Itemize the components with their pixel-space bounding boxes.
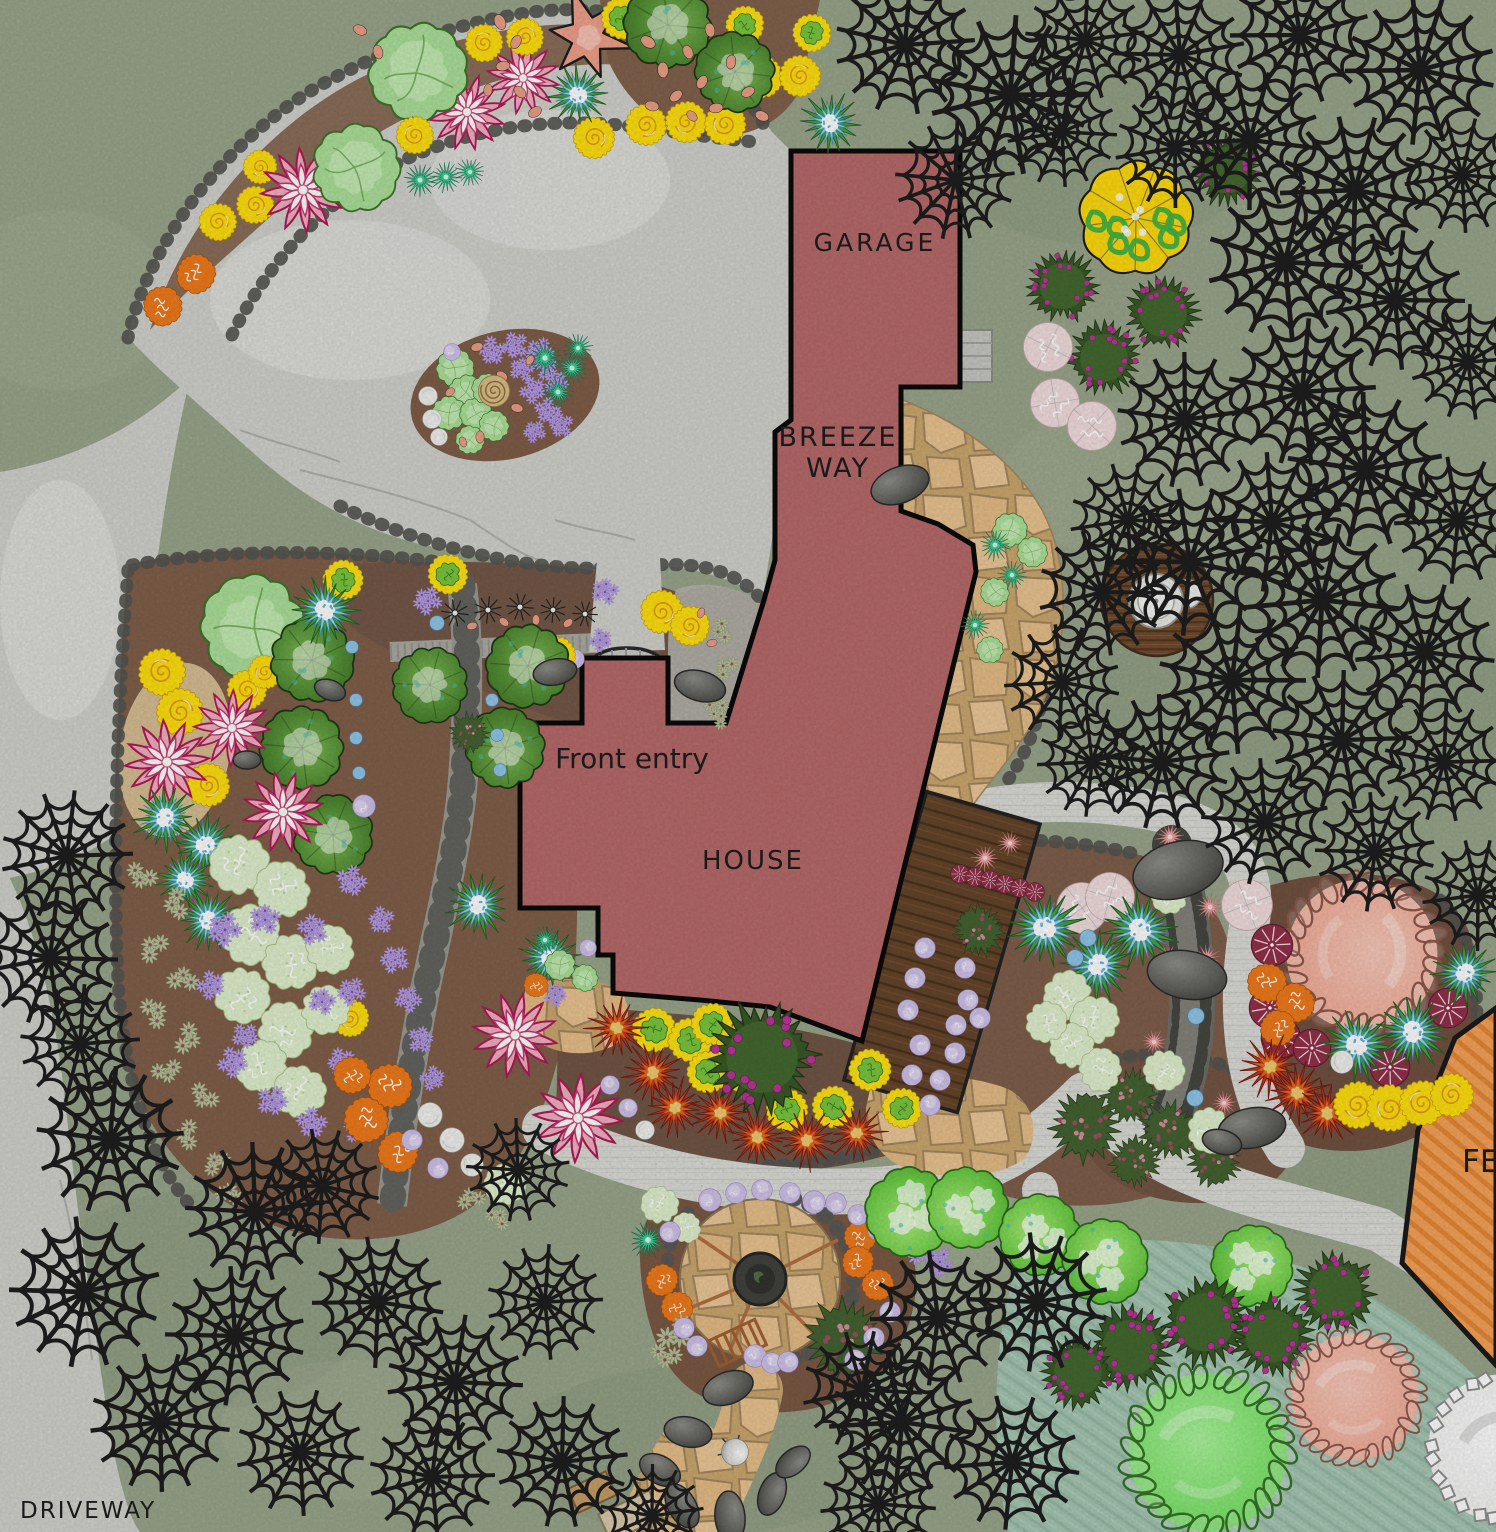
plan-canvas: GARAGE BREEZE WAY Front entry HOUSE DRIV… (0, 0, 1496, 1532)
landscape-plan: GARAGE BREEZE WAY Front entry HOUSE DRIV… (0, 0, 1496, 1532)
fence-label: FE (1462, 1144, 1496, 1180)
breezeway-label-line1: BREEZE (779, 422, 898, 453)
front-entry-label: Front entry (555, 742, 709, 775)
garage-label: GARAGE (814, 228, 937, 257)
house-label: HOUSE (702, 846, 804, 876)
texture-noise-fine (0, 0, 1496, 1532)
driveway-label: DRIVEWAY (20, 1498, 156, 1524)
breezeway-label-line2: WAY (806, 453, 870, 484)
